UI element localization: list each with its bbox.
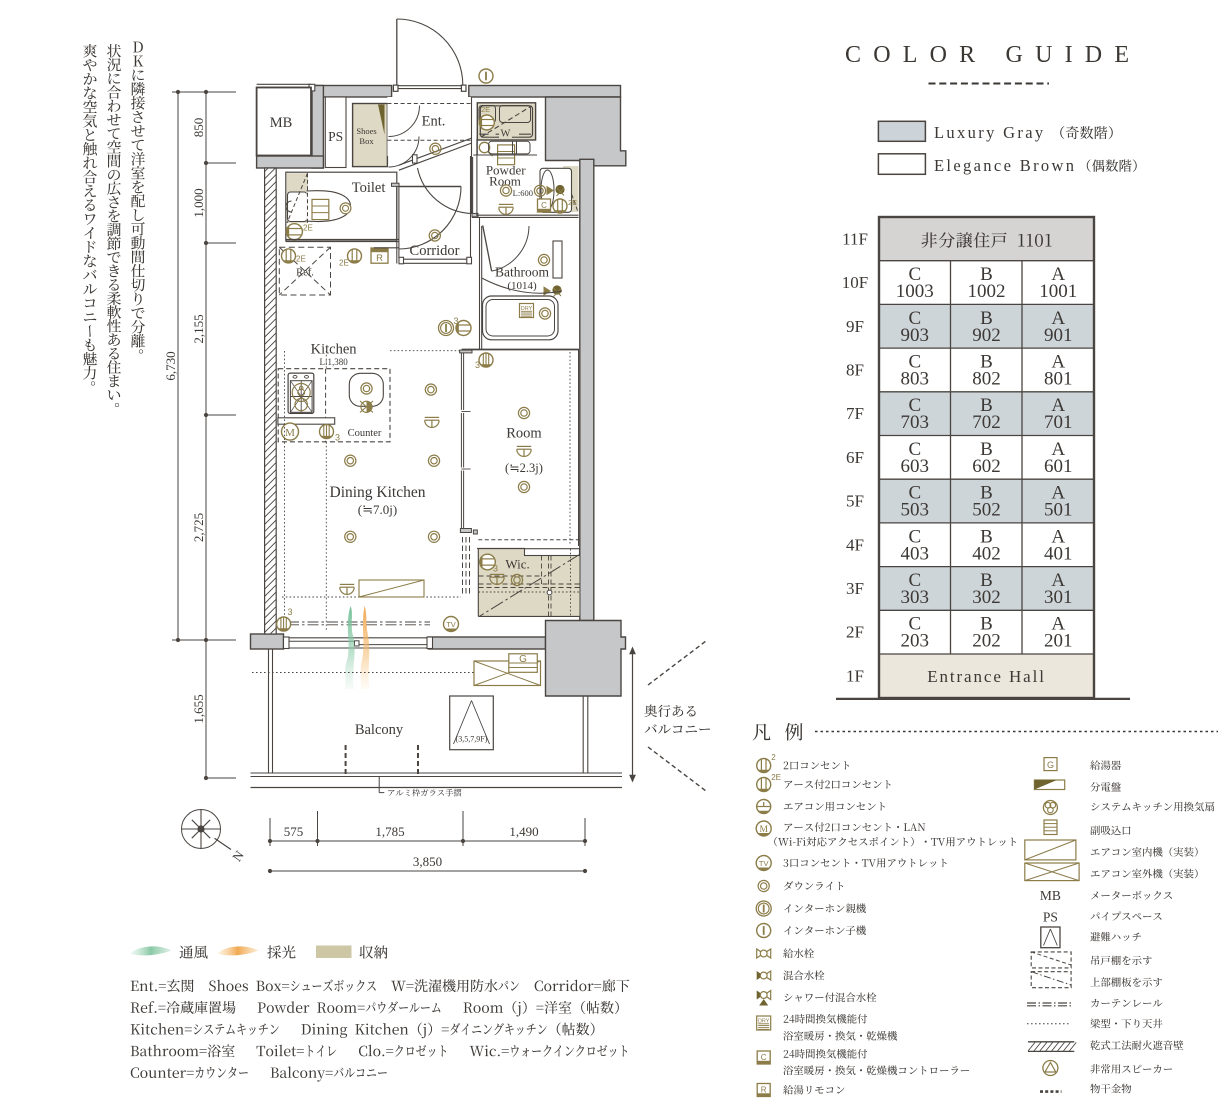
svg-text:1F: 1F	[846, 667, 864, 686]
svg-text:302: 302	[972, 587, 1001, 608]
svg-text:Room: Room	[489, 174, 521, 189]
svg-text:2E: 2E	[568, 198, 577, 207]
svg-text:303: 303	[901, 587, 930, 608]
svg-text:Elegance Brown: Elegance Brown	[934, 156, 1076, 175]
svg-text:G: G	[1047, 760, 1054, 770]
svg-text:2E: 2E	[339, 258, 349, 267]
svg-text:M: M	[759, 825, 768, 835]
svg-text:402: 402	[972, 543, 1001, 564]
svg-text:11F: 11F	[842, 229, 868, 248]
svg-text:Room: Room	[506, 426, 542, 442]
svg-text:575: 575	[284, 824, 304, 839]
svg-text:1,490: 1,490	[509, 824, 538, 839]
svg-text:(≒7.0j): (≒7.0j)	[358, 502, 397, 517]
svg-text:(3,5,7,9F): (3,5,7,9F)	[456, 735, 488, 744]
svg-text:TV: TV	[446, 620, 456, 629]
svg-text:MB: MB	[1040, 888, 1061, 903]
svg-text:Shoes: Shoes	[356, 126, 376, 136]
svg-text:802: 802	[972, 368, 1001, 389]
svg-text:2: 2	[771, 753, 776, 762]
svg-text:MB: MB	[270, 115, 293, 131]
svg-text:803: 803	[901, 368, 930, 389]
svg-text:901: 901	[1044, 325, 1073, 346]
svg-text:203: 203	[901, 631, 930, 652]
svg-text:1,785: 1,785	[375, 824, 404, 839]
svg-text:6F: 6F	[846, 448, 864, 467]
svg-text:R: R	[761, 1085, 767, 1094]
svg-text:603: 603	[901, 456, 930, 477]
svg-text:1002: 1002	[968, 281, 1006, 302]
svg-text:L:600: L:600	[513, 188, 533, 198]
svg-text:Toilet: Toilet	[352, 180, 386, 196]
svg-text:Entrance Hall: Entrance Hall	[927, 667, 1046, 686]
svg-text:PS: PS	[328, 129, 343, 144]
svg-text:1,655: 1,655	[191, 694, 206, 723]
svg-text:3: 3	[453, 316, 458, 326]
svg-text:COLOR GUIDE: COLOR GUIDE	[845, 42, 1141, 68]
svg-text:L:1,380: L:1,380	[319, 357, 348, 367]
svg-text:1,000: 1,000	[191, 188, 206, 217]
svg-text:903: 903	[901, 325, 930, 346]
svg-text:TV: TV	[759, 859, 769, 868]
svg-text:702: 702	[972, 412, 1001, 433]
svg-text:3: 3	[493, 564, 498, 574]
svg-text:Box: Box	[359, 136, 374, 146]
svg-text:Counter: Counter	[348, 428, 382, 439]
svg-text:R: R	[376, 253, 383, 264]
svg-text:1003: 1003	[896, 281, 934, 302]
svg-text:8F: 8F	[846, 360, 864, 379]
svg-text:801: 801	[1044, 368, 1073, 389]
svg-text:301: 301	[1044, 587, 1073, 608]
svg-text:W: W	[501, 129, 511, 140]
svg-text:G: G	[519, 654, 527, 665]
svg-text:2E: 2E	[771, 773, 781, 782]
svg-text:502: 502	[972, 500, 1001, 521]
svg-text:Kitchen: Kitchen	[311, 342, 358, 358]
svg-text:Bathroom: Bathroom	[495, 265, 549, 280]
svg-text:10F: 10F	[842, 273, 868, 292]
svg-text:Ent.: Ent.	[422, 114, 446, 130]
svg-text:6,730: 6,730	[163, 351, 178, 380]
svg-text:503: 503	[901, 500, 930, 521]
svg-text:(1014): (1014)	[507, 280, 537, 292]
svg-text:3: 3	[287, 607, 292, 617]
svg-text:3F: 3F	[846, 579, 864, 598]
svg-text:Luxury Gray: Luxury Gray	[934, 123, 1046, 142]
svg-text:Wic.: Wic.	[505, 557, 529, 572]
svg-text:PS: PS	[1043, 910, 1058, 925]
svg-text:M: M	[285, 427, 295, 439]
svg-text:Ref.: Ref.	[296, 268, 314, 279]
svg-text:2F: 2F	[846, 623, 864, 642]
svg-text:Balcony: Balcony	[355, 722, 404, 738]
svg-text:Dining Kitchen: Dining Kitchen	[330, 484, 426, 501]
svg-text:1001: 1001	[1039, 281, 1077, 302]
svg-text:4F: 4F	[846, 535, 864, 554]
svg-text:202: 202	[972, 631, 1001, 652]
svg-text:902: 902	[972, 325, 1001, 346]
svg-text:2,725: 2,725	[191, 513, 206, 542]
svg-text:2E: 2E	[303, 224, 313, 233]
svg-text:703: 703	[901, 412, 930, 433]
svg-text:7F: 7F	[846, 404, 864, 423]
svg-text:9F: 9F	[846, 317, 864, 336]
svg-text:602: 602	[972, 456, 1001, 477]
svg-text:3: 3	[475, 360, 480, 370]
svg-text:3: 3	[335, 433, 340, 443]
svg-text:201: 201	[1044, 631, 1073, 652]
svg-text:501: 501	[1044, 500, 1073, 521]
svg-text:2,155: 2,155	[191, 314, 206, 343]
svg-text:Corridor: Corridor	[410, 243, 460, 259]
svg-text:2E: 2E	[481, 105, 490, 114]
svg-text:(≒2.3j): (≒2.3j)	[505, 461, 543, 475]
svg-text:401: 401	[1044, 543, 1073, 564]
svg-text:403: 403	[901, 543, 930, 564]
svg-text:C: C	[761, 1053, 767, 1062]
svg-text:2E: 2E	[296, 254, 306, 263]
svg-text:601: 601	[1044, 456, 1073, 477]
svg-text:C: C	[541, 201, 547, 210]
svg-text:5F: 5F	[846, 492, 864, 511]
svg-text:3,850: 3,850	[413, 854, 442, 869]
svg-text:701: 701	[1044, 412, 1073, 433]
svg-text:850: 850	[191, 118, 206, 138]
